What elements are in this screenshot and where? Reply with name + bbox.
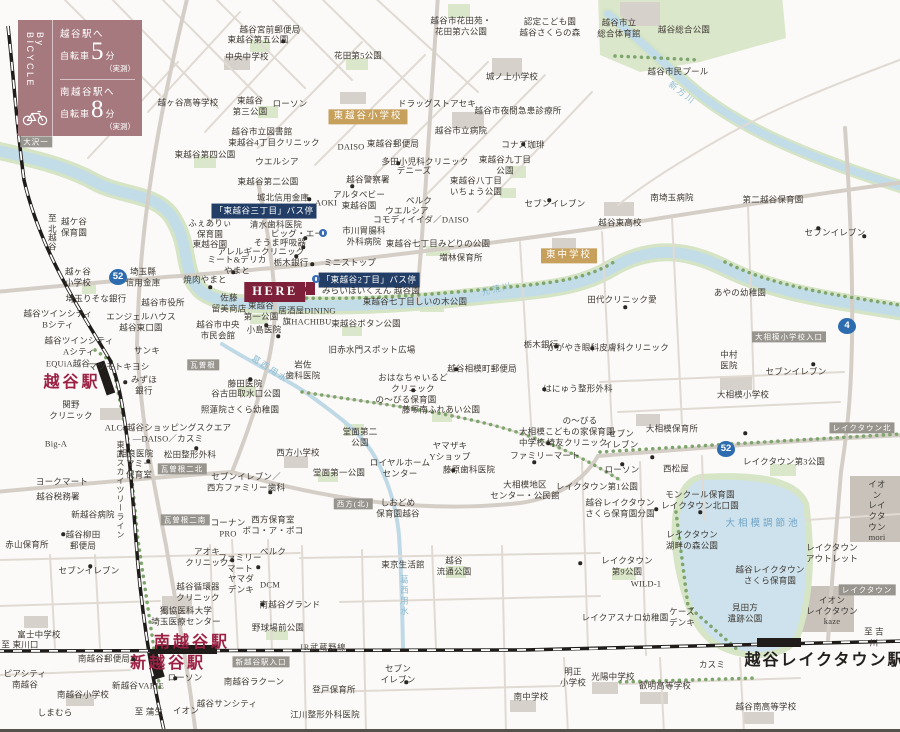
poi-label: 越谷市中央 市民会館 [196, 319, 240, 340]
poi-dot [131, 657, 135, 661]
road-sign: 瓦曽根 [187, 359, 219, 370]
poi-label: 越谷 流通公園 [437, 555, 472, 576]
poi-label: 埼玉縣 信用金庫 [126, 266, 161, 287]
poi-dot [698, 510, 702, 514]
poi-label: 埼玉りそな銀行 [66, 294, 127, 305]
poi-dot [303, 236, 307, 240]
road-sign: レイクタウン [839, 584, 896, 595]
poi-label: 野球場前公園 [252, 623, 304, 634]
school-sign: 東越谷小学校 [328, 109, 407, 124]
poi-label: 東越谷七丁目みどりの公園 [386, 239, 490, 250]
poi-label: 東越谷4丁目クリニック [228, 138, 319, 149]
poi-label: デニーズ [397, 166, 431, 177]
poi-label: レイクタウン第1公園 [556, 482, 638, 493]
poi-label: セブンイレブン [766, 367, 827, 378]
river-name: 元荒川 [480, 280, 513, 298]
poi-label: ロイヤルホーム センター [370, 457, 430, 478]
poi-label: 越谷市立図書館 [232, 127, 293, 138]
poi-label: レイクタウン第3公園 [743, 457, 825, 468]
poi-label: 西松屋 [663, 464, 689, 475]
bus-stop-icon [319, 229, 327, 237]
poi-dot [268, 490, 272, 494]
poi-label: しおどめ 保育園越谷 [376, 497, 420, 518]
poi-dot [146, 459, 150, 463]
poi-label: セブン イレブン [604, 428, 639, 449]
poi-label: 越谷税務署 [36, 492, 80, 503]
legend-entries: 越谷駅へ 自転車 5 分 （実測） 南越谷駅へ 自転車 8 分 （実測） [53, 20, 142, 136]
poi-label: 認定こども園 越谷さくらの森 [520, 16, 581, 37]
poi-label: 大相模 中学校 [519, 426, 545, 447]
route-shield: 52 [109, 269, 127, 285]
road-sign: 大沢一 [20, 136, 52, 147]
poi-label: 至 東川口 [1, 640, 38, 651]
poi-label: かがやき眼科皮膚科クリニック [547, 343, 669, 354]
poi-label: 越谷サンシティ [197, 699, 257, 710]
road-sign: 瓦曽根二南 [161, 514, 210, 525]
poi-label: 藤塚南ふれあい公園 [402, 405, 480, 416]
river-name: 葛西用水 [399, 575, 410, 617]
poi-dot [620, 462, 624, 466]
poi-label: 越谷市立 総合体育館 [597, 17, 641, 38]
poi-dot [816, 226, 820, 230]
poi-dot [547, 198, 551, 202]
poi-label: 南越谷ラクーン [224, 677, 284, 688]
poi-dot [208, 285, 212, 289]
poi-dot [546, 441, 550, 445]
poi-label: 東越谷七丁目しいの木公園 [363, 297, 467, 308]
poi-label: モンクール保育園 レイクタウン北口園 [661, 489, 739, 510]
poi-dot [173, 676, 177, 680]
poi-label: 中央中学校 [225, 52, 269, 63]
poi-label: ミート&デリカ やまと [207, 254, 266, 275]
station-name: 越谷レイクタウン駅 [744, 651, 900, 671]
poi-label: 栃木銀行 [274, 258, 309, 269]
poi-label: ローソン [605, 465, 640, 476]
poi-label: 東越谷ボタン公園 [331, 319, 401, 330]
poi-label: ミニストップ [324, 258, 376, 269]
poi-label: はにゅう整形外科 [543, 384, 613, 395]
poi-label: 越谷市花田苑・ 花田第六公園 [431, 15, 492, 36]
poi-dot [862, 234, 866, 238]
poi-dot [623, 305, 627, 309]
access-map: 越谷宮前郵便局東越谷第五公園中央中学校越ヶ谷高等学校東越谷 第三公園ローソン越谷… [0, 0, 900, 732]
poi-label: 至 吉川 [861, 626, 887, 647]
poi-label: イオン レイクタウン mori [866, 479, 889, 543]
poi-label: 埼友クリニック [547, 438, 608, 449]
poi-label: 松田整形外科 [164, 450, 216, 461]
poi-label: 居酒屋DINING 旗HACHIBU [278, 305, 336, 326]
poi-label: ベルク [260, 547, 286, 558]
poi-dot [578, 561, 582, 565]
poi-label: ケーズ デンキ [669, 606, 695, 627]
travel-minutes: 8 [91, 99, 105, 120]
poi-label: 越谷市役所 [141, 298, 185, 309]
bus-stop-icon [312, 275, 320, 283]
bus-stop-label: 「東越谷三丁目」バス停 [211, 204, 316, 219]
poi-label: 越ヶ谷 小学校 [65, 266, 91, 287]
poi-label: 東越谷第四公園 [175, 150, 236, 161]
poi-label: 東越谷第二公園 [238, 177, 299, 188]
poi-label: 新越谷病院 [71, 510, 115, 521]
poi-label: 江川整形外科医院 [290, 710, 360, 721]
road-sign: 新越谷駅入口 [233, 656, 290, 667]
station-name: 越谷駅 [43, 373, 100, 393]
station-name: 南越谷駅 [154, 633, 230, 653]
poi-dot [451, 468, 455, 472]
poi-label: 増林保育所 [439, 253, 483, 264]
poi-dot [256, 565, 260, 569]
poi-dot [88, 564, 92, 568]
poi-label: ドラッグストアセキ [398, 99, 476, 110]
poi-label: 越谷ツインシティ Aシティ [44, 335, 113, 356]
poi-label: 南越谷小学校 [57, 690, 109, 701]
poi-label: 越谷市民プール [648, 67, 709, 78]
here-marker: HERE [244, 282, 305, 302]
poi-label: 南中学校 [514, 692, 549, 703]
poi-dot [743, 431, 747, 435]
poi-dot [411, 388, 415, 392]
poi-dot [281, 39, 285, 43]
poi-label: 叡明高等学校 [639, 681, 691, 692]
poi-label: 堂面第一公園 [313, 468, 365, 479]
poi-label: 南越谷グランド [260, 600, 321, 611]
poi-label: みらいほいくえん 越谷園 [322, 286, 420, 297]
poi-label: 谷古田取水口公園 [211, 389, 281, 400]
poi-label: 越谷レイクタウン さくら保育園分園 [585, 497, 655, 518]
poi-label: 南埼玉病院 [650, 193, 694, 204]
poi-dot [654, 507, 658, 511]
poi-label: 焼肉やまと [183, 275, 227, 286]
poi-dot [811, 362, 815, 366]
poi-label: 大相模地区 センター・公民館 [490, 479, 560, 500]
rail-line-name: 東武スカイツリーライン [115, 441, 125, 540]
poi-label: 東越谷 第一公園 [244, 300, 279, 321]
poi-label: ヤマダ デンキ [228, 573, 254, 594]
road-sign: 瓦曽根二北 [158, 463, 207, 474]
poi-label: マツモトキヨシ [89, 362, 150, 373]
poi-dot [554, 344, 558, 348]
poi-label: ウエルシア [255, 157, 299, 168]
poi-label: AOKI [315, 198, 337, 209]
poi-label: レイクタウン 湖畔の森公園 [666, 529, 718, 550]
poi-label: 城ノ上小学校 [486, 72, 538, 83]
poi-label: コーナン PRO [211, 517, 246, 538]
poi-dot [521, 142, 525, 146]
travel-mode: 自転車 [60, 107, 90, 120]
route-shield: 4 [838, 318, 856, 334]
poi-label: 城北信用金庫 [257, 193, 309, 204]
poi-dot [260, 602, 264, 606]
poi-label: セブンイレブン [805, 228, 866, 239]
poi-label: 越谷ツインシティ Bシティ [23, 308, 92, 329]
poi-label: 関野 クリニック [49, 399, 93, 420]
poi-label: 見田方 遺跡公園 [728, 602, 763, 623]
poi-label: 花田第5公園 [334, 51, 382, 62]
poi-dot [230, 558, 234, 562]
poi-label: 西方小学校 [276, 448, 320, 459]
poi-label: 至 蒲生 [135, 707, 163, 718]
poi-label: アルタベビー 東越谷園 [333, 189, 385, 210]
poi-dot [123, 380, 127, 384]
poi-label: 田代クリニック愛 [587, 295, 657, 306]
poi-dot [61, 532, 65, 536]
poi-label: DCM [260, 580, 280, 591]
bicycle-access-legend: By BICYCLE 越谷駅へ 自転車 5 分 （実測） 南越谷駅へ [18, 20, 142, 136]
poi-label: 東越谷第五公園 [228, 35, 289, 46]
poi-label: DAISO [338, 142, 365, 153]
lake-name: 大相模調節池 [725, 519, 800, 531]
poi-label: 越谷レイクタウン さくら保育園 [735, 564, 804, 585]
poi-label: 東越谷八丁目 いちょう公園 [450, 175, 502, 196]
poi-label: ファミリーマート [510, 451, 580, 462]
poi-label: 東越谷 第三公園 [233, 95, 268, 116]
poi-label: 越谷柳田 郵便局 [66, 529, 101, 550]
poi-dot [276, 334, 280, 338]
poi-dot [307, 197, 311, 201]
poi-label: セブン イレブン [381, 663, 416, 684]
poi-dot [542, 387, 546, 391]
legend-entry-koshigaya: 越谷駅へ 自転車 5 分 （実測） [60, 26, 135, 74]
poi-label: 新越谷VARIE [112, 681, 164, 692]
poi-label: WILD-1 [631, 579, 661, 590]
poi-label: 獨協医科大学 埼玉医療センター [151, 605, 221, 626]
poi-label: 南越谷郵便局 [78, 654, 130, 665]
poi-label: 越ヶ谷高等学校 [158, 98, 219, 109]
poi-label: 越谷市立病院 [435, 126, 487, 137]
poi-dot [404, 680, 408, 684]
poi-label: サンキ [134, 346, 160, 357]
legend-left-column: By BICYCLE [18, 20, 53, 136]
travel-unit: 分 [106, 107, 116, 120]
travel-time: 自転車 8 分 [60, 99, 135, 120]
poi-label: 東越谷郵便局 [367, 139, 419, 150]
poi-dot [301, 245, 305, 249]
poi-label: 越谷市夜間急患診療所 [474, 106, 561, 117]
poi-dot [248, 377, 252, 381]
poi-label: イオン [173, 706, 199, 717]
poi-label: イオン レイクタウン kaze [806, 595, 858, 627]
poi-dot [231, 270, 235, 274]
rail-line-name: JR武蔵野線 [300, 643, 346, 653]
poi-label: レイクアスナロ幼稚園 [582, 613, 669, 624]
poi-label: レイクタウン 第9公園 [601, 555, 653, 576]
poi-label: みずほ 銀行 [131, 374, 157, 395]
travel-minutes: 5 [91, 41, 105, 62]
travel-mode: 自転車 [60, 49, 90, 62]
poi-label: セブンイレブン [525, 199, 586, 210]
poi-label: しまむら [38, 708, 73, 719]
poi-dot [294, 254, 298, 258]
station-name: 新越谷駅 [130, 654, 206, 674]
poi-dot [396, 161, 400, 165]
poi-label: 光陽中学校 [591, 672, 635, 683]
poi-label: 大相模保育所 [646, 424, 698, 435]
poi-dot [350, 184, 354, 188]
poi-dot [532, 460, 536, 464]
poi-label: ヤマザキ Yショップ [429, 440, 470, 461]
poi-label: コモディイイダ／DAISO [373, 215, 469, 226]
bicycle-icon [22, 108, 48, 126]
school-sign: 東中学校 [541, 248, 597, 263]
travel-unit: 分 [106, 49, 116, 62]
poi-label: 照蓮院さくら幼稚園 [201, 405, 279, 416]
poi-label: 赤山保育所 [5, 540, 49, 551]
legend-divider [60, 79, 135, 80]
poi-dot [590, 346, 594, 350]
travel-time: 自転車 5 分 [60, 41, 135, 62]
poi-label: 越谷総合公園 [658, 25, 710, 36]
poi-dot [310, 262, 314, 266]
poi-dot [650, 455, 654, 459]
poi-dot [454, 367, 458, 371]
poi-label: EQUiA越谷 [46, 359, 90, 370]
poi-label: ファミリー マート [218, 552, 262, 573]
poi-label: 堂面第二 公園 [343, 426, 378, 447]
poi-label: 岩佐 歯科医院 [286, 359, 321, 380]
poi-label: 中村 医院 [720, 349, 737, 370]
poi-label: ローソン [273, 99, 308, 110]
poi-label: レイクタウン アウトレット [806, 542, 858, 563]
poi-label: 至 北越谷 [47, 213, 58, 250]
poi-label: 明正 小学校 [560, 666, 586, 687]
poi-label: 大相模小学校 [717, 390, 769, 401]
poi-label: 越谷東高校 [598, 218, 642, 229]
poi-label: 越谷南高等学校 [736, 702, 797, 713]
poi-label: 第二越谷保育園 [743, 195, 804, 206]
poi-label: エンジェルハウス 越谷東口園 [106, 311, 176, 332]
poi-label: 登戸保育所 [312, 685, 356, 696]
road-sign: レイクタウン北 [829, 422, 894, 433]
poi-label: ヨークマート [36, 477, 88, 488]
poi-label: 西方保育室 ポコ・ア・ポコ [243, 514, 304, 535]
legend-title: By BICYCLE [25, 32, 45, 108]
poi-label: 旧赤水門スポット広場 [328, 345, 415, 356]
poi-label: ふぇありぃ 保育園 東越谷園 [188, 218, 232, 250]
poi-label: 越谷循環器 クリニック [176, 581, 220, 602]
poi-label: セブンイレブン／ 西方ファミリー歯科 [207, 471, 285, 492]
poi-label: ピアシティ 南越谷 [4, 668, 47, 689]
poi-dot [264, 323, 268, 327]
poi-label: 市川胃腸科 外科病院 [342, 225, 386, 246]
route-shield: 52 [717, 441, 735, 457]
poi-label: 東京生活館 [381, 560, 425, 571]
poi-label: 東越谷九丁目 公園 [479, 154, 531, 175]
poi-label: 佐藤 留美商店 [212, 292, 247, 313]
poi-label: Big-A [45, 439, 67, 450]
legend-entry-minami-koshigaya: 南越谷駅へ 自転車 8 分 （実測） [60, 84, 135, 132]
poi-label: 越ケ谷 保育園 [61, 216, 87, 237]
road-sign: 西方(北) [334, 498, 373, 509]
road-sign: 大相模小学校入口 [752, 331, 826, 342]
poi-label: あやの幼稚園 [714, 288, 766, 299]
river-name: 新方川 [666, 79, 697, 107]
poi-label: カスミ [699, 660, 725, 671]
poi-dot [194, 446, 198, 450]
